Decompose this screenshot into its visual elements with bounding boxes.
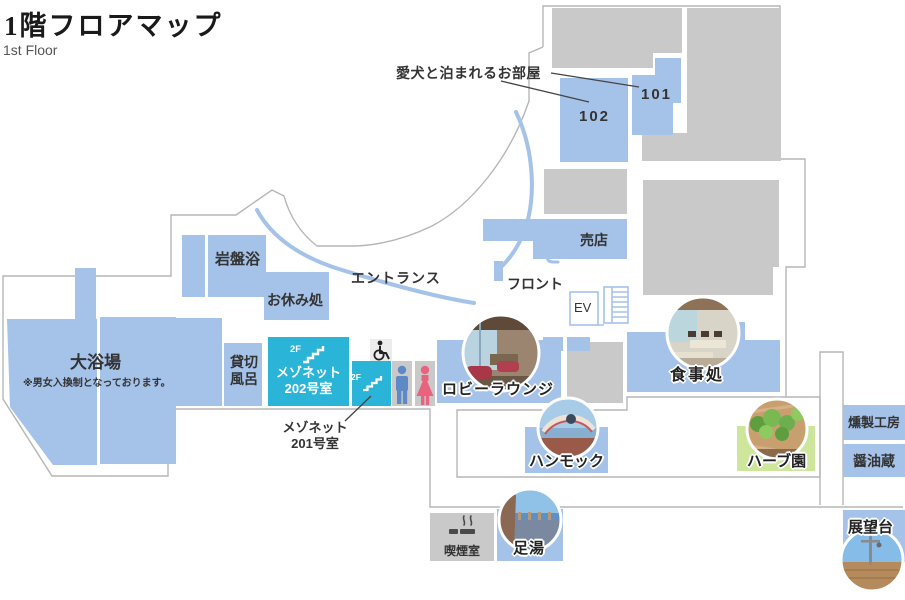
foot-bath-label: 足湯 xyxy=(513,537,545,558)
large-bath-left-wing xyxy=(7,319,97,465)
large-bath-right-wing xyxy=(100,317,176,464)
front-desk-label: フロント xyxy=(507,274,563,294)
observation-deck-label: 展望台 xyxy=(848,516,893,537)
front-counter-1 xyxy=(543,337,563,351)
room-102-label: 102 xyxy=(579,108,610,125)
canopy-pillar xyxy=(494,261,503,281)
private-bath-label: 貸切風呂 xyxy=(228,354,260,388)
stone-sauna-area-left xyxy=(182,235,205,297)
outline-east-corridor xyxy=(820,352,843,505)
stone-sauna-label: 岩盤浴 xyxy=(215,248,260,269)
large-bath-note: ※男女入換制となっております。 xyxy=(23,374,171,389)
bath-upper-column xyxy=(75,268,96,319)
lobby-lounge-label: ロビーラウンジ xyxy=(442,378,554,399)
elevator-label: EV xyxy=(574,300,591,315)
hammock-photo xyxy=(538,398,598,458)
front-counter-2 xyxy=(567,337,590,351)
canopy-arc-right xyxy=(499,112,532,269)
maisonette-201-line2: 201号室 xyxy=(291,436,339,451)
observation-deck-photo xyxy=(841,529,903,591)
bath-side-column xyxy=(172,318,222,406)
dining-photo xyxy=(667,297,739,370)
shop-label: 売店 xyxy=(580,230,608,250)
dog-rooms-label: 愛犬と泊まれるお部屋 xyxy=(396,63,541,83)
floor-2f-label-202: 2F xyxy=(290,344,301,355)
large-bath-label: 大浴場 xyxy=(70,348,121,373)
herb-garden-label: ハーブ園 xyxy=(747,450,806,471)
floor-map-graphic: 2F 2F xyxy=(0,0,905,600)
front-counter-3 xyxy=(627,337,646,351)
rest-area-label: お休み処 xyxy=(267,290,323,310)
gray-area-corridor xyxy=(567,342,623,403)
gray-area-under-101 xyxy=(642,133,687,161)
hammock-label: ハンモック xyxy=(529,450,604,471)
page-subtitle: 1st Floor xyxy=(3,42,57,58)
maisonette-202-label: メゾネット 202号室 xyxy=(268,365,349,397)
smoking-room-label: 喫煙室 xyxy=(430,542,494,559)
entrance-label: エントランス xyxy=(351,268,441,288)
maisonette-201-label: メゾネット 201号室 xyxy=(280,420,350,452)
room-101-label: 101 xyxy=(641,86,672,103)
soy-sauce-label: 醤油蔵 xyxy=(843,451,905,471)
floor-2f-label-201: 2F xyxy=(351,372,361,382)
smokehouse-label: 燻製工房 xyxy=(843,412,905,431)
maisonette-202-line1: メゾネット xyxy=(276,365,341,380)
gray-area-center xyxy=(643,180,779,295)
page-title: 1階フロアマップ xyxy=(4,4,223,43)
gray-area-above-shop xyxy=(544,169,627,214)
dining-label: 食事処 xyxy=(670,361,724,385)
floor-map: 2F 2F xyxy=(0,0,905,600)
maisonette-201-line1: メゾネット xyxy=(282,420,347,435)
gray-area-north-east xyxy=(687,8,781,161)
maisonette-202-line2: 202号室 xyxy=(285,381,333,396)
